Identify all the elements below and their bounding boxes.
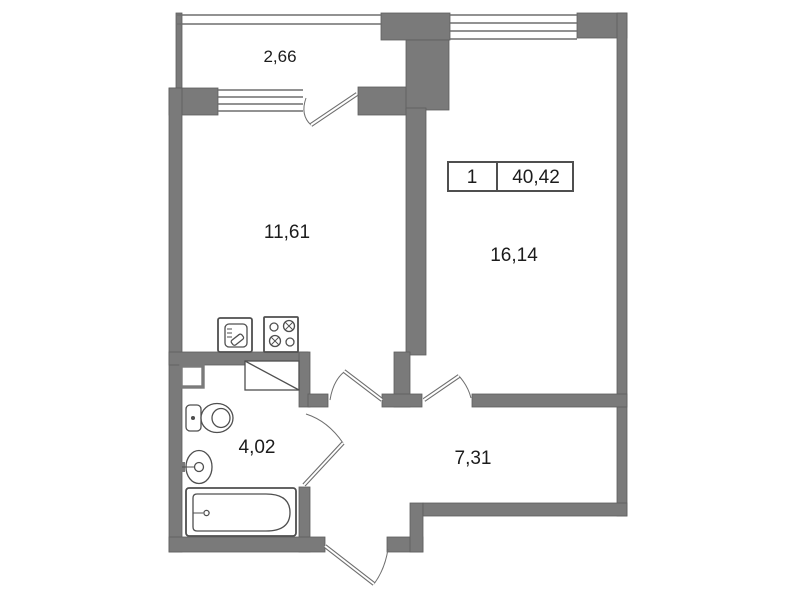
bathroom-area-label: 4,02 — [239, 437, 276, 458]
kitchen-door-arc — [330, 372, 344, 400]
balcony-glazing — [176, 15, 381, 24]
left-outer-wall — [169, 88, 182, 552]
entry-step-wall — [410, 503, 423, 552]
fixtures — [181, 317, 299, 536]
kitchen-top-pier-right — [358, 87, 408, 115]
balcony-area-label: 2,66 — [263, 47, 296, 66]
stove-icon — [264, 317, 298, 352]
hallway-top-wall-left — [308, 394, 328, 407]
living-room-window — [450, 15, 577, 39]
living-room-area-label: 16,14 — [490, 245, 538, 266]
wardrobe-icon — [245, 361, 299, 390]
living-room-door-arc — [459, 376, 471, 398]
unit-total-area: 40,42 — [512, 167, 560, 188]
kitchen-area-label: 11,61 — [264, 222, 310, 243]
vent-duct-icon — [181, 366, 203, 387]
entrance-door-arc — [374, 549, 388, 584]
toilet-icon — [186, 404, 233, 433]
balcony-door — [304, 94, 357, 125]
mainroom-left-pier — [406, 40, 449, 110]
unit-number: 1 — [467, 167, 478, 188]
hallway-top-wall-right — [472, 394, 627, 407]
kitchen-sink-icon — [218, 318, 252, 352]
unit-info-box: 1 40,42 — [448, 162, 573, 191]
walls — [169, 13, 627, 552]
entrance-door — [325, 546, 388, 584]
washbasin-icon — [181, 451, 212, 484]
mainroom-top-wall-left — [381, 13, 450, 40]
right-outer-wall — [617, 13, 627, 516]
bathroom-door — [304, 414, 343, 485]
kitchen-mainroom-divider-wall — [406, 108, 426, 355]
balcony-door-arc — [304, 98, 311, 125]
bathroom-door-arc — [306, 414, 343, 443]
bathtub-icon — [186, 488, 296, 536]
living-room-door — [424, 376, 471, 400]
hallway-area-label: 7,31 — [455, 448, 492, 469]
floor-plan-svg: 1 40,42 2,66 11,61 16,14 4,02 7,31 — [0, 0, 799, 600]
bottom-wall-right — [423, 503, 627, 516]
bottom-wall-left — [169, 537, 325, 552]
floor-plan-page: 1 40,42 2,66 11,61 16,14 4,02 7,31 — [0, 0, 799, 600]
hallway-top-wall-mid — [382, 394, 422, 407]
kitchen-window — [218, 90, 303, 111]
kitchen-door — [330, 371, 382, 400]
